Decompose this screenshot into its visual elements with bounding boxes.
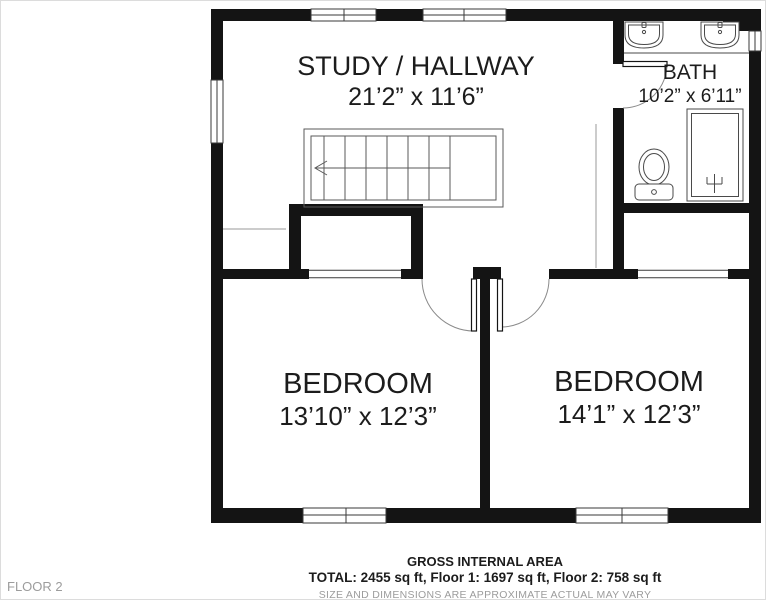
floor-plan-page: STUDY / HALLWAY 21’2” x 11’6” BATH 10’2”… [0,0,766,600]
room-label-study-hallway: STUDY / HALLWAY 21’2” x 11’6” [297,51,535,112]
room-dimensions: 21’2” x 11’6” [297,83,535,113]
area-disclaimer: SIZE AND DIMENSIONS ARE APPROXIMATE ACTU… [211,589,759,600]
closet-openings [309,269,728,280]
shower-icon [687,109,743,201]
room-dimensions: 14’1” x 12’3” [554,399,704,430]
room-name: BEDROOM [554,365,704,399]
window [303,508,386,523]
area-title: GROSS INTERNAL AREA [211,554,759,569]
room-label-bath: BATH 10’2” x 6’11” [638,61,741,108]
room-dimensions: 13’10” x 12’3” [279,401,437,432]
area-totals: TOTAL: 2455 sq ft, Floor 1: 1697 sq ft, … [211,570,759,585]
room-label-bedroom-left: BEDROOM 13’10” x 12’3” [279,367,437,432]
room-label-bedroom-right: BEDROOM 14’1” x 12’3” [554,365,704,430]
window [423,9,506,21]
gross-internal-area-note: GROSS INTERNAL AREA TOTAL: 2455 sq ft, F… [211,554,759,600]
room-name: BATH [638,61,741,86]
bedroom-left-door [422,279,477,331]
room-dimensions: 10’2” x 6’11” [638,86,741,108]
drain-icon [707,174,722,193]
toilet-icon [635,149,673,200]
window [576,508,668,523]
sink-icon [701,22,739,48]
bath-fixtures [624,22,749,201]
bedroom-right-door [498,279,550,331]
sink-icon [625,22,663,48]
stair-direction-arrow [315,161,450,175]
floor-label: FLOOR 2 [7,579,63,594]
window [311,9,376,21]
room-name: BEDROOM [279,367,437,401]
stairs [304,129,503,207]
partition-lines [223,124,596,268]
window [211,80,223,143]
room-name: STUDY / HALLWAY [297,51,535,83]
window [749,31,761,51]
